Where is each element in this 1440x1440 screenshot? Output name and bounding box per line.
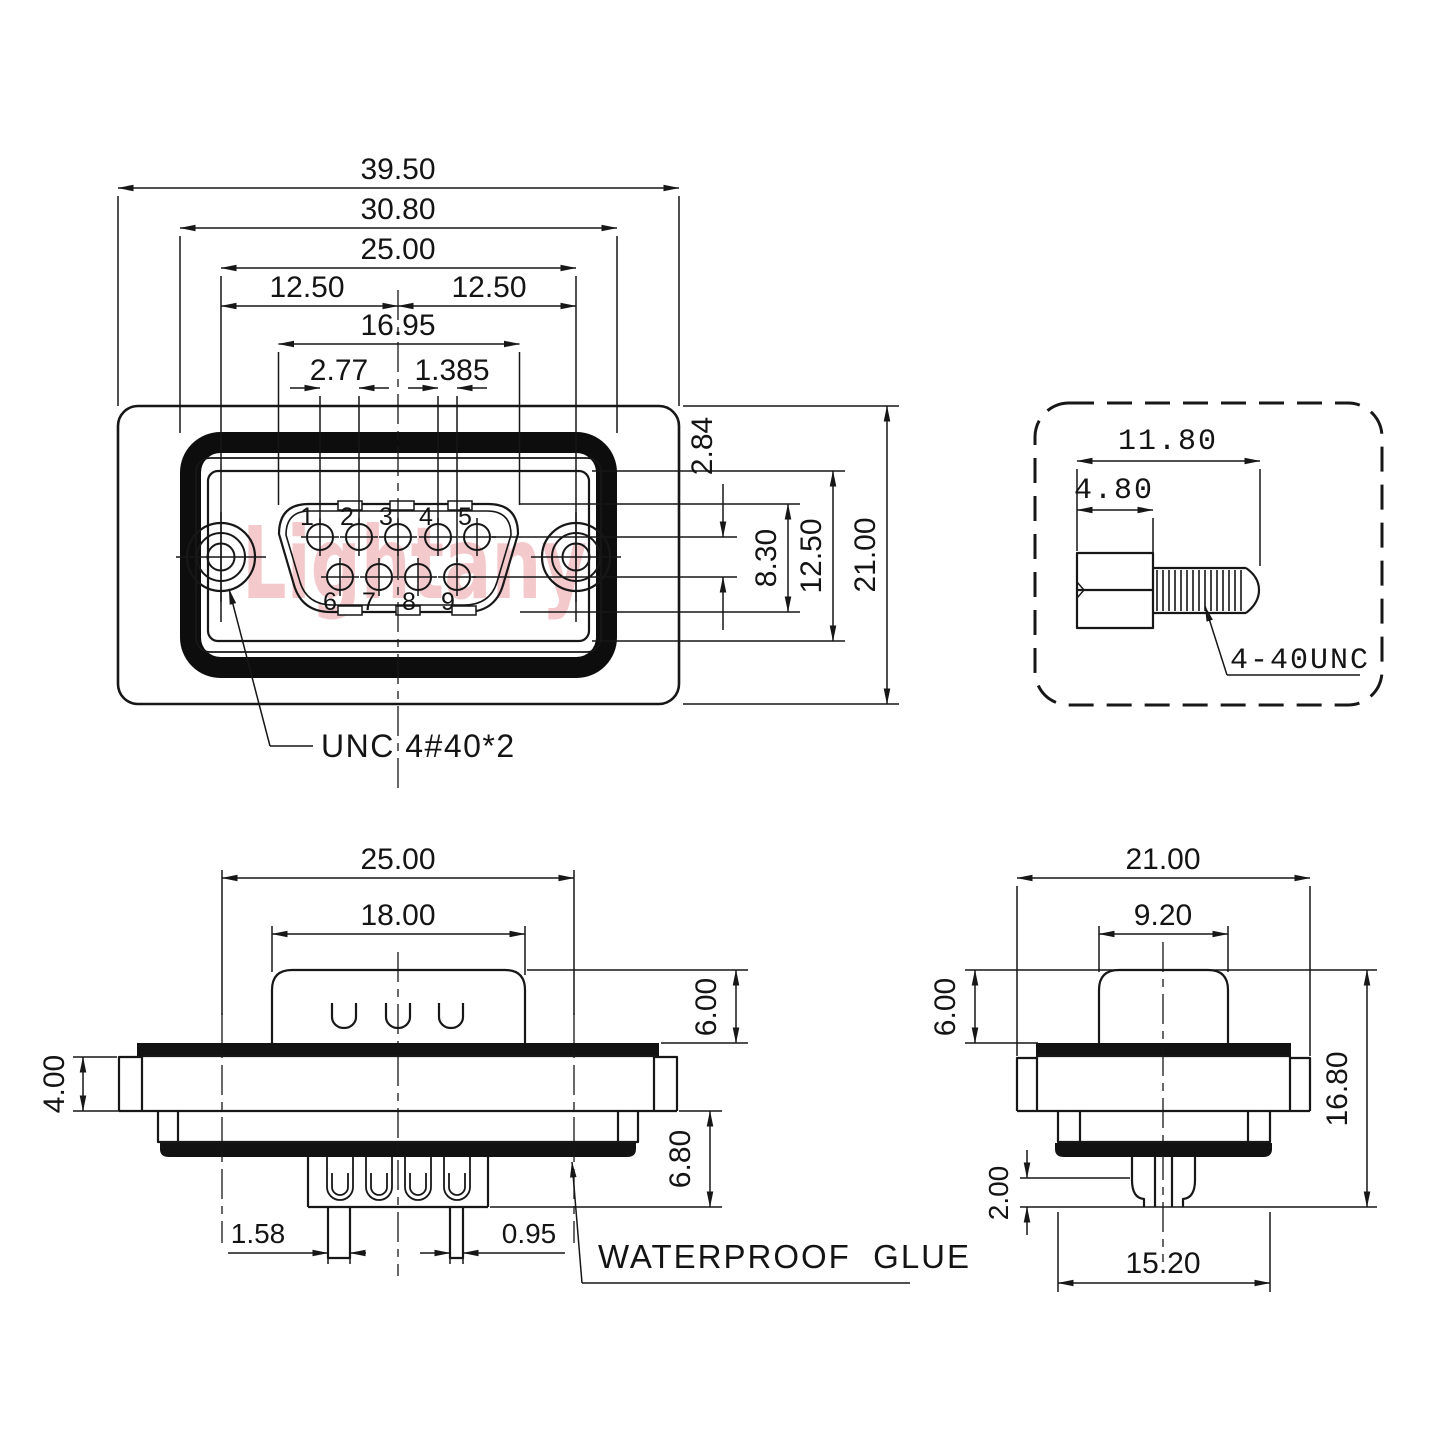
solder-cup — [327, 1157, 353, 1200]
dim-rear-height: 6.80 — [664, 1130, 697, 1188]
pin-narrow — [450, 1207, 463, 1258]
pin-number-9: 9 — [441, 588, 455, 616]
dim-end-flange-width: 21.00 — [1125, 843, 1200, 876]
screw-thread — [1153, 568, 1259, 613]
dim-screw-span: 25.00 — [360, 233, 435, 266]
dim-pin-pitch: 2.77 — [310, 354, 368, 387]
screw-detail-view: 11.80 4.80 4-40UNC — [1035, 403, 1382, 705]
dim-overall-width: 39.50 — [360, 153, 435, 186]
end-rear-step — [1058, 1111, 1270, 1142]
end-pin-left — [1132, 1157, 1155, 1207]
dim-shell-width: 16.95 — [360, 309, 435, 342]
dim-row-offset: 1.385 — [414, 354, 489, 387]
dim-end-body-width: 15.20 — [1125, 1247, 1200, 1280]
dim-end-total-height: 16.80 — [1321, 1051, 1354, 1126]
dim-gasket-width: 30.80 — [360, 193, 435, 226]
shell-slot — [439, 1003, 463, 1028]
pin-number-4: 4 — [419, 503, 433, 531]
end-pin-right — [1172, 1157, 1195, 1207]
dim-screw-length: 11.80 — [1118, 425, 1218, 459]
dim-pin-thickness: 0.95 — [502, 1218, 557, 1249]
dim-screw-left: 12.50 — [269, 271, 344, 304]
pin-number-3: 3 — [379, 503, 393, 531]
pin-number-8: 8 — [402, 588, 416, 616]
dim-shell-height: 8.30 — [750, 529, 783, 587]
glue-label: WATERPROOF GLUE — [598, 1238, 971, 1275]
side-section-view: 25.00 18.00 4.00 6.00 6.80 1.58 0.95 WAT… — [38, 843, 971, 1283]
pin-number-7: 7 — [362, 588, 376, 616]
dim-insert-height: 12.50 — [795, 518, 828, 593]
dim-flange-span: 25.00 — [360, 843, 435, 876]
screw-head — [1077, 553, 1153, 628]
shell-notch — [338, 606, 362, 615]
thread-spec-note: 4-40UNC — [1205, 606, 1370, 678]
end-dimensions: 21.00 9.20 6.00 16.80 2.00 15.20 — [929, 843, 1367, 1283]
dim-screw-right: 12.50 — [451, 271, 526, 304]
dim-shell-width-side: 18.00 — [360, 899, 435, 932]
pin-wide — [328, 1207, 350, 1258]
dim-screw-head: 4.80 — [1074, 474, 1154, 508]
shell-slot — [332, 1003, 356, 1028]
end-section-view: 21.00 9.20 6.00 16.80 2.00 15.20 — [929, 843, 1377, 1292]
solder-cup — [444, 1157, 470, 1200]
solder-cup — [366, 1157, 392, 1200]
front-view: 1 2 3 4 5 6 7 8 9 39.50 — [118, 153, 899, 795]
pin-number-5: 5 — [458, 503, 472, 531]
dim-pin-width: 1.58 — [231, 1218, 286, 1249]
unc-note-label: UNC 4#40*2 — [321, 728, 516, 764]
shell-notch — [452, 606, 476, 615]
pin-number-1: 1 — [300, 503, 314, 531]
technical-drawing: Lightany 1 2 3 4 5 6 7 8 — [0, 0, 1440, 1440]
dim-end-pin-length: 2.00 — [983, 1166, 1014, 1221]
dim-flange-thickness: 4.00 — [38, 1055, 71, 1113]
solder-cup — [405, 1157, 431, 1200]
glue-note: WATERPROOF GLUE — [572, 1162, 971, 1283]
dim-end-shell-width: 9.20 — [1134, 899, 1192, 932]
shell-notch — [390, 501, 414, 510]
dim-shell-height-side: 6.00 — [690, 978, 723, 1036]
pin-number-2: 2 — [340, 503, 354, 531]
dim-overall-height: 21.00 — [849, 517, 882, 592]
pin-number-6: 6 — [323, 588, 337, 616]
dim-row-spacing: 2.84 — [686, 417, 719, 475]
thread-spec-label: 4-40UNC — [1230, 644, 1370, 678]
drawing-page: Lightany 1 2 3 4 5 6 7 8 — [0, 0, 1440, 1440]
dim-end-shell-height: 6.00 — [929, 978, 962, 1036]
